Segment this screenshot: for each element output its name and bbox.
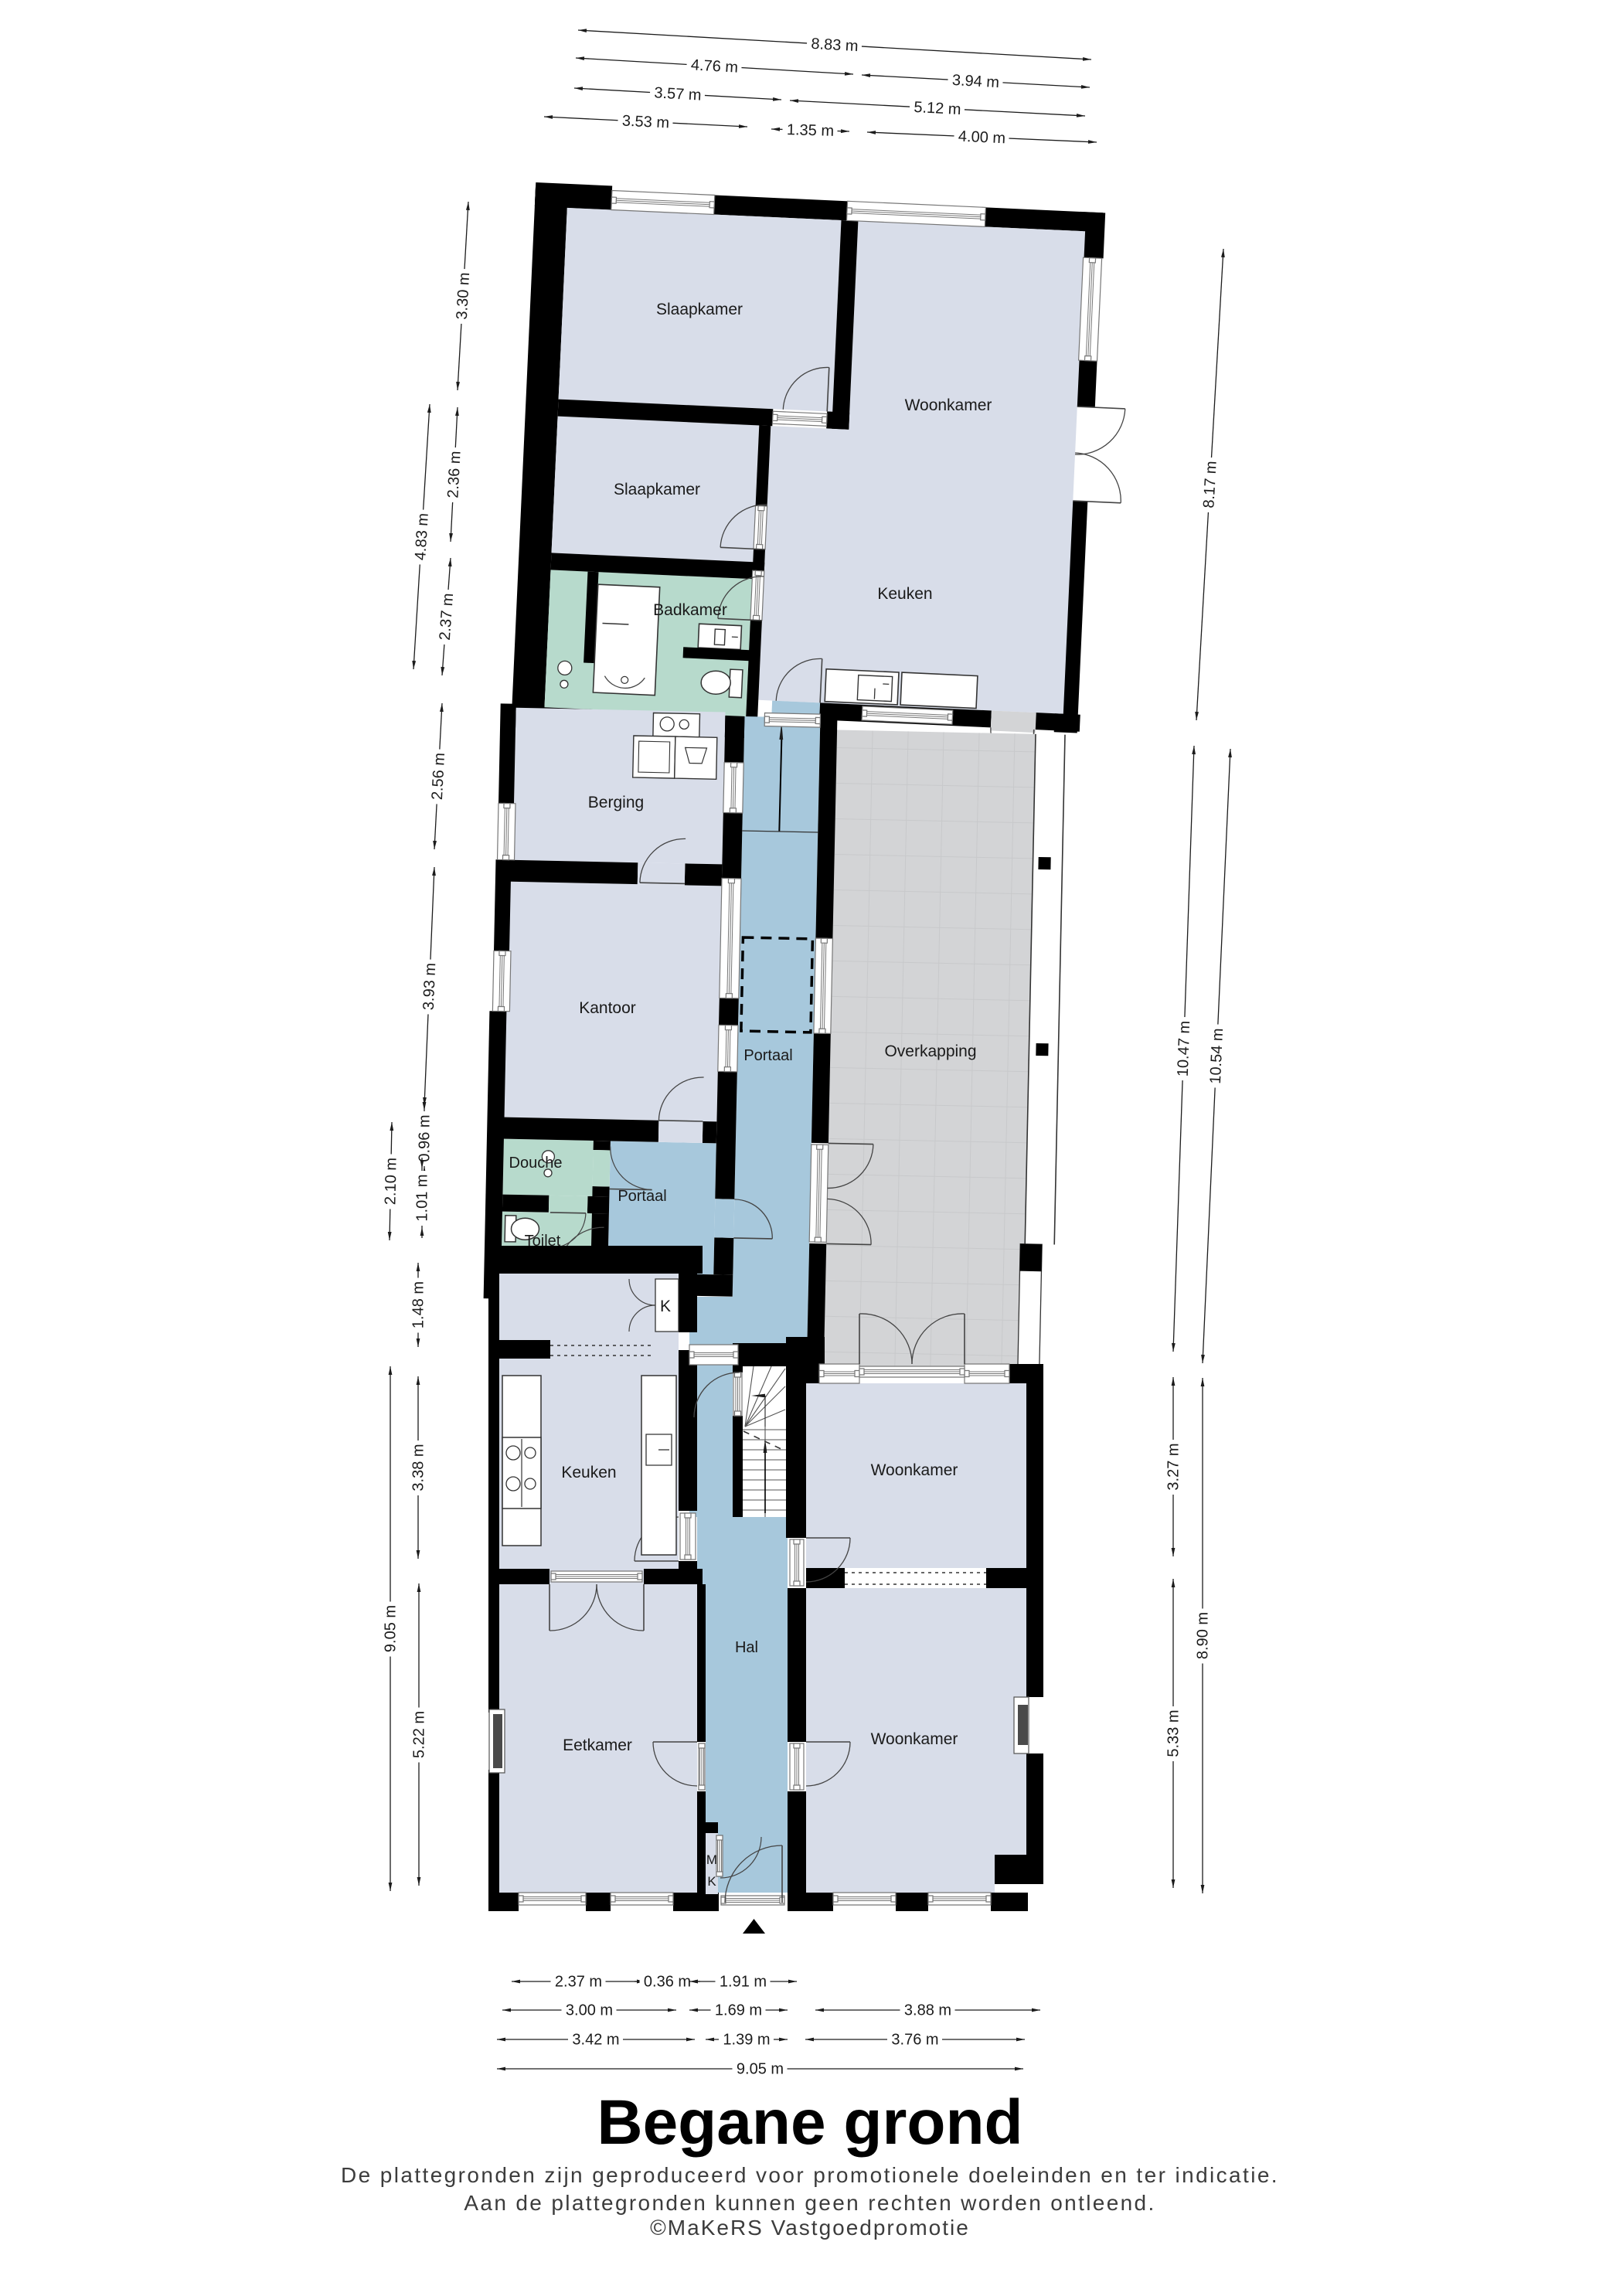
svg-text:5.22 m: 5.22 m (411, 1711, 428, 1758)
svg-text:Hal: Hal (735, 1639, 758, 1656)
svg-text:9.05 m: 9.05 m (383, 1605, 400, 1652)
svg-text:Keuken: Keuken (877, 585, 932, 603)
svg-text:Kantoor: Kantoor (579, 999, 636, 1017)
svg-text:0.96 m: 0.96 m (417, 1114, 434, 1162)
svg-text:4.83 m: 4.83 m (412, 512, 432, 560)
svg-text:8.83 m: 8.83 m (811, 36, 859, 55)
svg-text:10.47 m: 10.47 m (1175, 1021, 1194, 1077)
svg-text:Woonkamer: Woonkamer (871, 1461, 958, 1479)
svg-text:3.94 m: 3.94 m (951, 72, 999, 91)
svg-text:Douche: Douche (509, 1155, 563, 1172)
svg-text:3.88 m: 3.88 m (904, 2002, 951, 2019)
svg-text:3.30 m: 3.30 m (454, 272, 473, 320)
svg-text:De plattegronden zijn geproduc: De plattegronden zijn geproduceerd voor … (341, 2163, 1279, 2187)
svg-text:3.93 m: 3.93 m (420, 963, 440, 1011)
svg-text:K: K (660, 1298, 671, 1315)
svg-text:Portaal: Portaal (743, 1047, 792, 1064)
svg-text:Berging: Berging (588, 794, 644, 811)
svg-text:M: M (706, 1852, 717, 1867)
svg-text:5.33 m: 5.33 m (1165, 1709, 1182, 1757)
svg-text:2.37 m: 2.37 m (555, 1974, 602, 1991)
svg-text:0.36 m: 0.36 m (644, 1974, 691, 1991)
svg-text:Slaapkamer: Slaapkamer (614, 481, 700, 498)
svg-text:2.37 m: 2.37 m (437, 593, 457, 641)
svg-text:3.42 m: 3.42 m (572, 2032, 619, 2049)
svg-text:Aan de plattegronden kunnen ge: Aan de plattegronden kunnen geen rechten… (464, 2191, 1155, 2215)
svg-text:3.57 m: 3.57 m (654, 84, 702, 104)
svg-text:2.56 m: 2.56 m (429, 752, 448, 800)
svg-text:1.48 m: 1.48 m (410, 1281, 427, 1328)
svg-text:Badkamer: Badkamer (653, 601, 727, 619)
svg-text:3.76 m: 3.76 m (891, 2032, 938, 2049)
svg-text:Woonkamer: Woonkamer (871, 1730, 958, 1748)
svg-text:1.69 m: 1.69 m (715, 2002, 762, 2019)
svg-text:K: K (707, 1874, 716, 1889)
svg-text:Toilet: Toilet (525, 1233, 561, 1250)
svg-text:Slaapkamer: Slaapkamer (656, 301, 743, 318)
svg-text:1.39 m: 1.39 m (723, 2032, 770, 2049)
svg-text:1.35 m: 1.35 m (787, 121, 835, 140)
svg-text:Eetkamer: Eetkamer (563, 1736, 632, 1754)
svg-text:10.54 m: 10.54 m (1207, 1028, 1227, 1084)
svg-text:Keuken: Keuken (561, 1464, 616, 1481)
svg-text:5.12 m: 5.12 m (914, 99, 961, 118)
svg-text:2.36 m: 2.36 m (444, 451, 464, 498)
svg-text:Overkapping: Overkapping (884, 1043, 976, 1060)
svg-text:1.01 m: 1.01 m (414, 1174, 431, 1221)
svg-text:©MaKeRS Vastgoedpromotie: ©MaKeRS Vastgoedpromotie (650, 2216, 970, 2240)
svg-text:3.00 m: 3.00 m (566, 2002, 613, 2019)
svg-text:3.53 m: 3.53 m (621, 113, 669, 132)
svg-text:1.91 m: 1.91 m (720, 1974, 767, 1991)
svg-text:3.38 m: 3.38 m (410, 1444, 427, 1491)
svg-text:Woonkamer: Woonkamer (905, 396, 992, 414)
svg-text:4.76 m: 4.76 m (690, 56, 738, 76)
svg-text:4.00 m: 4.00 m (958, 128, 1005, 148)
svg-text:3.27 m: 3.27 m (1165, 1443, 1182, 1490)
svg-text:Portaal: Portaal (618, 1188, 666, 1205)
svg-text:8.17 m: 8.17 m (1200, 461, 1220, 509)
svg-text:Begane grond: Begane grond (597, 2087, 1022, 2158)
svg-text:9.05 m: 9.05 m (737, 2061, 784, 2078)
svg-text:8.90 m: 8.90 m (1195, 1612, 1212, 1659)
svg-text:2.10 m: 2.10 m (382, 1158, 400, 1206)
